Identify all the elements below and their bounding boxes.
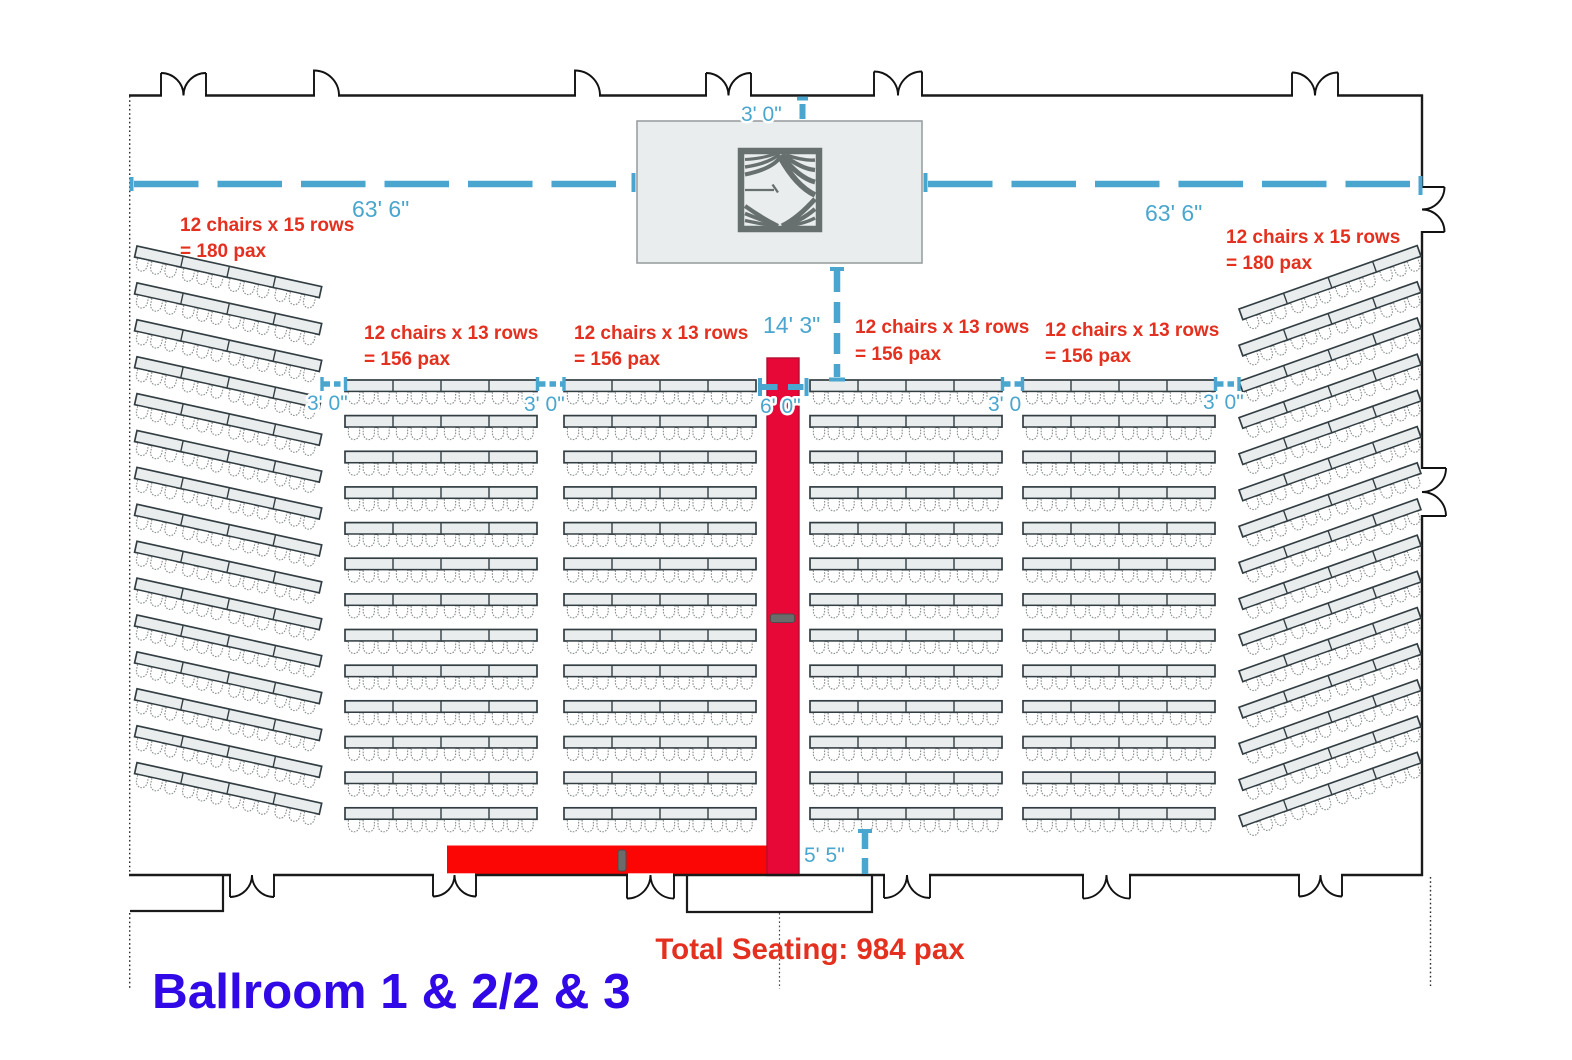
svg-text:= 180 pax: = 180 pax	[1226, 253, 1313, 274]
svg-text:12 chairs x 13 rows: 12 chairs x 13 rows	[574, 323, 748, 344]
svg-text:3' 0": 3' 0"	[524, 393, 565, 416]
svg-text:= 156 pax: = 156 pax	[1045, 346, 1132, 367]
svg-text:6' 0": 6' 0"	[760, 395, 801, 418]
svg-text:3' 0": 3' 0"	[307, 392, 348, 415]
svg-text:= 180 pax: = 180 pax	[180, 241, 267, 262]
svg-text:= 156 pax: = 156 pax	[574, 349, 661, 370]
svg-text:63' 6": 63' 6"	[352, 196, 409, 222]
svg-text:Total Seating: 984 pax: Total Seating: 984 pax	[655, 933, 965, 966]
svg-text:5' 5": 5' 5"	[804, 844, 845, 867]
svg-text:= 156 pax: = 156 pax	[855, 344, 942, 365]
svg-text:12 chairs x 15 rows: 12 chairs x 15 rows	[180, 215, 354, 236]
svg-text:= 156 pax: = 156 pax	[364, 349, 451, 370]
svg-text:12 chairs x 13 rows: 12 chairs x 13 rows	[855, 317, 1029, 338]
svg-text:14' 3": 14' 3"	[763, 312, 820, 338]
svg-text:12 chairs x 13 rows: 12 chairs x 13 rows	[364, 323, 538, 344]
svg-text:12 chairs x 15 rows: 12 chairs x 15 rows	[1226, 227, 1400, 248]
svg-text:12 chairs x 13 rows: 12 chairs x 13 rows	[1045, 320, 1219, 341]
svg-text:Ballroom 1 & 2/2 & 3: Ballroom 1 & 2/2 & 3	[152, 964, 631, 1019]
svg-text:3' 0": 3' 0"	[1203, 391, 1244, 414]
svg-text:63' 6": 63' 6"	[1145, 200, 1202, 226]
svg-text:3' 0: 3' 0	[988, 393, 1021, 416]
svg-text:3' 0": 3' 0"	[741, 103, 782, 126]
